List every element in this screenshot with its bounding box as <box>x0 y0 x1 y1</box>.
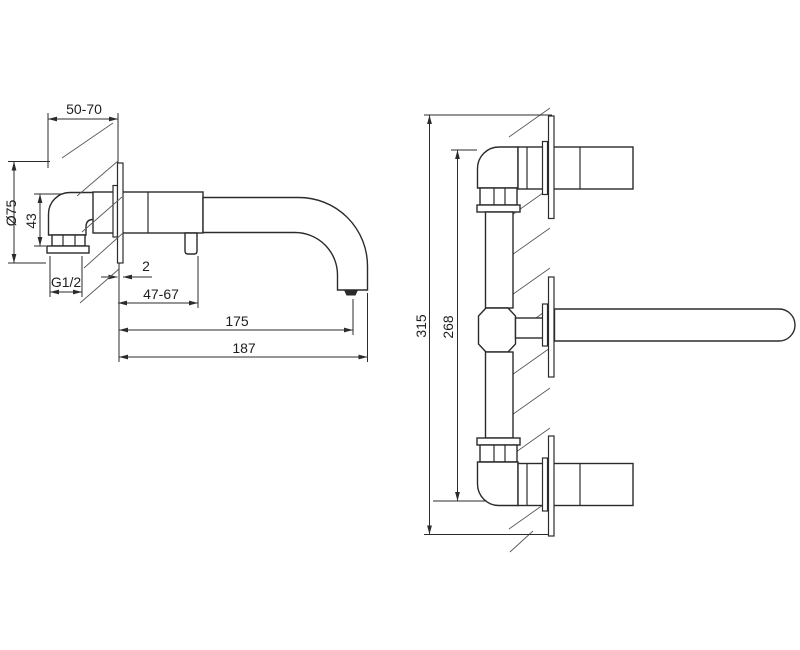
bottom-connection-nut <box>480 445 517 462</box>
dim-label-escutcheon-thickness: 2 <box>142 259 150 273</box>
dim-label-wall-depth-range: 50-70 <box>66 102 102 116</box>
front-view-faucet <box>477 116 795 536</box>
side-view-faucet <box>47 163 368 296</box>
riser-pipe-upper <box>486 212 514 308</box>
side-view <box>8 113 368 362</box>
riser-pipe-lower <box>486 352 514 438</box>
connection-nut-side <box>52 235 85 246</box>
spout-side <box>203 198 368 291</box>
dim-label-spout-reach: 175 <box>225 314 248 328</box>
technical-drawing-canvas: 50-70 Ø75 43 G1/2 2 47-67 175 187 315 26… <box>0 0 800 650</box>
bottom-connection-flange <box>477 438 520 445</box>
spout-escutcheon-collar <box>543 304 548 346</box>
dim-label-total-height: 315 <box>414 314 428 337</box>
faucet-dimension-drawing <box>0 0 800 650</box>
dim-label-elbow-height: 43 <box>24 213 38 229</box>
escutcheon-plate-side <box>118 163 124 263</box>
spout-front <box>555 309 796 341</box>
dim-label-escutcheon-diameter: Ø75 <box>4 200 18 226</box>
dim-label-thread-size: G1/2 <box>51 275 81 289</box>
spout-escutcheon-plate <box>549 277 555 377</box>
inlet-elbow-side <box>48 193 94 236</box>
top-elbow-front <box>478 147 519 188</box>
dim-label-total-projection: 187 <box>232 341 255 355</box>
spout-tee-fitting <box>479 308 516 352</box>
bottom-escutcheon-collar <box>543 458 548 511</box>
top-valve-handle <box>518 147 633 189</box>
top-escutcheon-plate <box>549 116 555 219</box>
escutcheon-collar-side <box>113 186 118 238</box>
dim-label-spout-tip-range: 47-67 <box>143 287 179 301</box>
front-view <box>424 108 795 552</box>
aerator-tab <box>185 233 197 254</box>
bottom-valve-handle <box>518 464 633 506</box>
dim-label-valve-center-span: 268 <box>441 315 455 338</box>
bottom-elbow-front <box>478 462 519 506</box>
top-connection-flange <box>477 205 520 212</box>
aerator-outlet <box>344 290 358 296</box>
top-escutcheon-collar <box>543 142 548 195</box>
bottom-escutcheon-plate <box>549 436 555 536</box>
connection-flange-side <box>47 246 89 253</box>
top-connection-nut <box>480 188 517 205</box>
